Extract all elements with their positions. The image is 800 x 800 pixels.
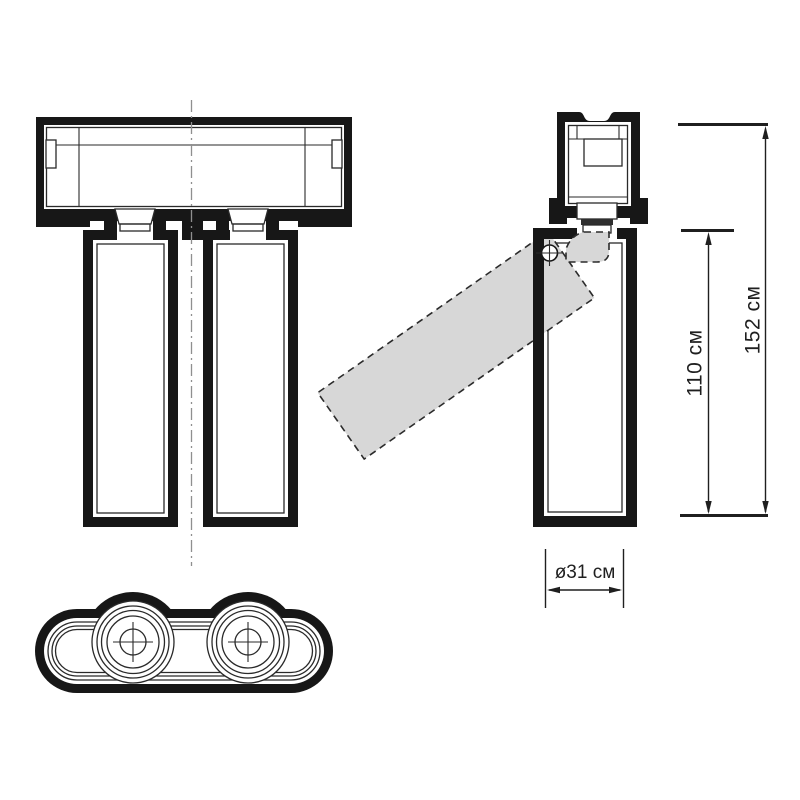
stem bbox=[577, 203, 617, 219]
connector-stub-left bbox=[115, 209, 155, 224]
center-hook bbox=[182, 221, 203, 240]
technical-drawing: 152 см 110 см ø31 см bbox=[0, 0, 800, 800]
dim-diameter: ø31 см bbox=[546, 549, 624, 608]
dim-label-body-height: 110 см bbox=[684, 329, 707, 396]
connector-cap-left bbox=[120, 224, 150, 231]
dim-label-diameter: ø31 см bbox=[555, 562, 616, 583]
latch-left bbox=[46, 140, 56, 168]
latch-right bbox=[332, 140, 342, 168]
connector-stub-right bbox=[228, 209, 268, 224]
lens-left bbox=[92, 601, 174, 683]
dim-label-total-height: 152 см bbox=[742, 286, 765, 355]
lens-right bbox=[207, 601, 289, 683]
connector-cap-right bbox=[233, 224, 263, 231]
side-view bbox=[318, 112, 648, 527]
dim-total-height: 152 см bbox=[678, 125, 769, 516]
bottom-view bbox=[35, 592, 333, 693]
front-view bbox=[36, 117, 352, 527]
dim-body-height: 110 см bbox=[681, 231, 734, 515]
